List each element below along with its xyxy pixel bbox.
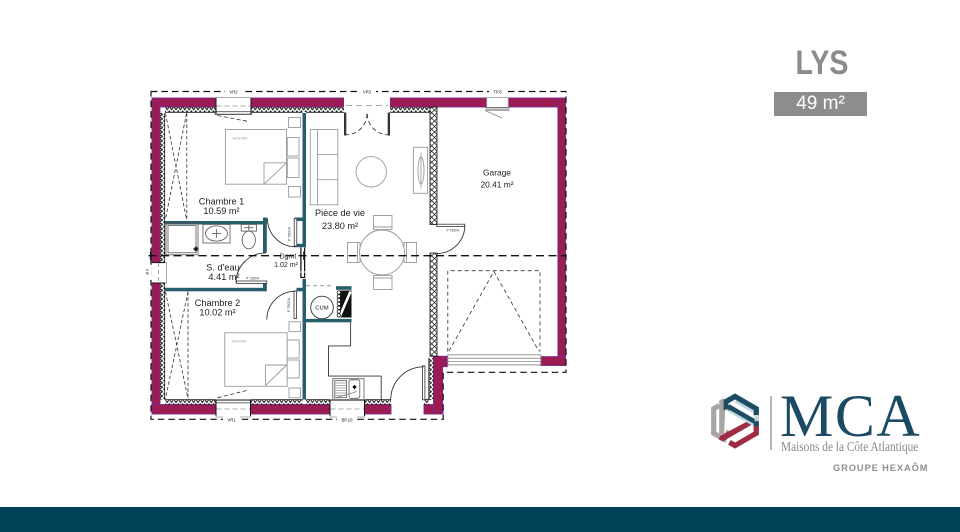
svg-text:P 73/204: P 73/204	[287, 227, 291, 241]
svg-text:Garage: Garage	[483, 168, 511, 178]
svg-text:TP.6: TP.6	[493, 89, 502, 94]
svg-text:BP.10: BP.10	[342, 417, 354, 422]
svg-text:1.02 m²: 1.02 m²	[274, 262, 298, 269]
svg-text:CUM: CUM	[315, 306, 329, 312]
svg-text:Chambre 1: Chambre 1	[199, 197, 244, 207]
svg-text:Pièce de vie: Pièce de vie	[315, 208, 365, 218]
svg-text:S. d'eau: S. d'eau	[206, 263, 239, 273]
svg-text:P 73/204: P 73/204	[287, 298, 291, 312]
svg-text:Dgmt: Dgmt	[280, 254, 297, 261]
svg-text:4.41 m²: 4.41 m²	[208, 272, 239, 282]
svg-text:VR2: VR2	[229, 89, 238, 94]
svg-text:Chambre 2: Chambre 2	[195, 298, 240, 308]
svg-text:VR3: VR3	[363, 89, 372, 94]
svg-text:20.41 m²: 20.41 m²	[480, 180, 513, 190]
svg-text:23.80 m²: 23.80 m²	[322, 221, 358, 231]
svg-text:Ø.6: Ø.6	[146, 269, 150, 275]
svg-text:P 73/204: P 73/204	[246, 276, 259, 280]
svg-text:VR1: VR1	[227, 417, 236, 422]
svg-text:REF: REF	[346, 306, 350, 312]
svg-text:10.59 m²: 10.59 m²	[203, 206, 239, 216]
svg-text:10.02 m²: 10.02 m²	[199, 308, 235, 318]
svg-text:P 73/204: P 73/204	[447, 229, 460, 233]
svg-text:140x200: 140x200	[232, 136, 248, 141]
svg-text:140x200: 140x200	[231, 339, 247, 344]
